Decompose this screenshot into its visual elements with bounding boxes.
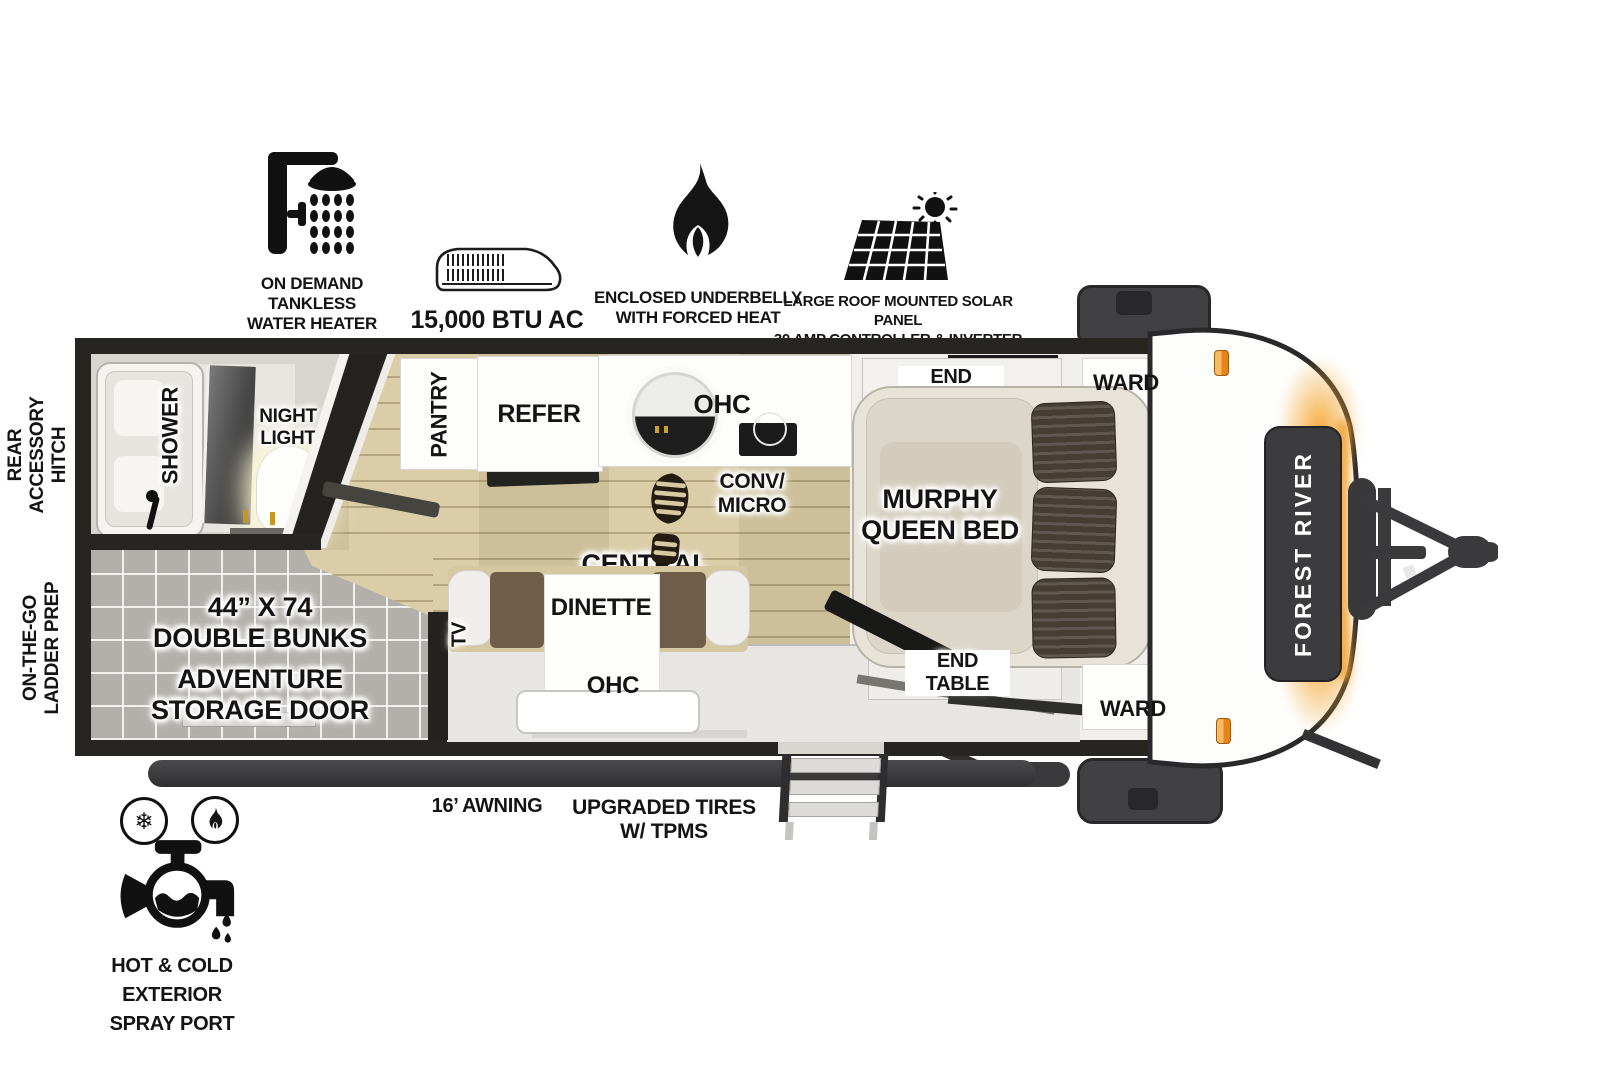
bath-fixture-gold-1 (243, 510, 248, 523)
bed-pillow-3 (1031, 577, 1116, 658)
awning-label: 16’ AWNING (407, 795, 567, 818)
ladder-prep-label: ON-THE-GO LADDER PREP (20, 573, 64, 723)
hitch-assembly (1346, 462, 1498, 634)
roof-box-latch (1116, 291, 1152, 315)
end-table-bottom-label: END TABLE (905, 650, 1010, 696)
brand-panel: FOREST RIVER (1264, 426, 1342, 682)
counter-knob-1 (655, 426, 659, 433)
tv-label: TV (449, 615, 472, 655)
bath-fixture-gold-2 (270, 512, 275, 525)
tv-wall (428, 612, 448, 740)
kitchen-ohc-label: OHC (682, 390, 762, 420)
hot-flame-icon (191, 796, 239, 844)
tires-label: UPGRADED TIRES W/ TPMS (564, 796, 764, 844)
rear-hitch-label: REAR ACCESSORY HITCH (5, 385, 65, 525)
ward-bottom-label: WARD (1083, 696, 1183, 721)
ac-unit-icon (432, 240, 566, 294)
spray-port-faucet-icon (112, 838, 240, 950)
water-heater-label: ON DEMAND TANKLESS WATER HEATER (222, 274, 402, 334)
dinette-label: DINETTE (546, 594, 656, 622)
counter-knob-2 (664, 426, 668, 433)
bed-pillow-1 (1031, 401, 1118, 484)
dinette-seatback-left (490, 572, 544, 648)
marker-light-top (1214, 350, 1229, 376)
ward-top-label: WARD (1076, 370, 1176, 395)
wall-left (75, 338, 91, 756)
dinette-seatback-right (652, 572, 706, 648)
dinette-seat-end-right (704, 570, 750, 646)
entry-door-sill (778, 742, 884, 754)
ac-label: 15,000 BTU AC (407, 306, 587, 335)
conv-micro-label: CONV/ MICRO (702, 470, 802, 518)
marker-light-bottom (1216, 718, 1231, 744)
spray-port-label: HOT & COLD EXTERIOR SPRAY PORT (62, 952, 282, 1039)
bath-bunks-wall (75, 534, 321, 550)
shower-label: SHOWER (157, 371, 182, 501)
refer-label: REFER (479, 400, 599, 429)
flame-icon (658, 163, 736, 273)
floorplan-diagram: ON DEMAND TANKLESS WATER HEATER 15,000 B… (0, 0, 1600, 1092)
dinette-ohc-label: OHC (573, 672, 653, 700)
solar-panel-icon (840, 192, 960, 286)
brand-label: FOREST RIVER (1290, 451, 1317, 657)
shower-head-icon (262, 148, 364, 260)
footprint-icon (641, 470, 695, 568)
awning-bar (148, 760, 1036, 787)
pantry-label: PANTRY (426, 360, 451, 470)
wall-top (75, 338, 1170, 354)
front-box-latch (1128, 788, 1158, 810)
wall-bottom (75, 740, 1170, 756)
shower-fixture-knob (146, 490, 158, 502)
murphy-bed-label: MURPHY QUEEN BED (830, 484, 1050, 546)
storage-door-label: ADVENTURE STORAGE DOOR (120, 664, 400, 726)
bunks-label: 44” X 74 DOUBLE BUNKS (120, 592, 400, 654)
entry-steps (778, 754, 889, 844)
